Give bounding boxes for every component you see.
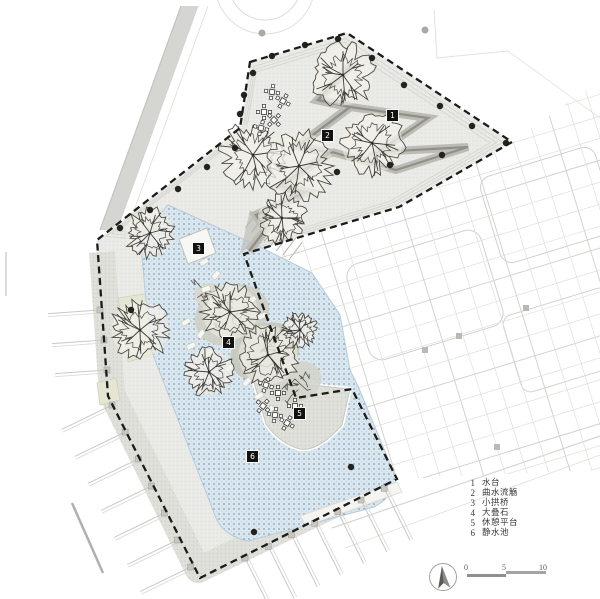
plan-marker-2: 2: [322, 130, 333, 141]
legend-item: 1水台: [466, 478, 518, 488]
scale-bar-segment: [506, 571, 546, 574]
legend: 1水台 2曲水流觞 3小拱桥 4大叠石 5休憩平台 6静水池: [466, 478, 518, 538]
plan-marker-4: 4: [223, 337, 234, 348]
legend-item: 6静水池: [466, 528, 518, 538]
scale-bar-segment: [467, 574, 506, 577]
legend-item: 2曲水流觞: [466, 488, 518, 498]
plan-marker-6: 6: [247, 451, 258, 462]
scale-bar: 0 5 10: [428, 560, 558, 596]
scale-tick: 0: [464, 563, 468, 572]
site-plan-page: 1 2 3 4 5 6 1水台 2曲水流觞 3小拱桥 4大叠石 5休憩平台 6静…: [0, 0, 600, 599]
plan-marker-5: 5: [294, 408, 305, 419]
legend-item: 3小拱桥: [466, 498, 518, 508]
plan-marker-3: 3: [193, 243, 204, 254]
legend-item: 5休憩平台: [466, 518, 518, 528]
plan-marker-1: 1: [387, 110, 398, 121]
legend-item: 4大叠石: [466, 508, 518, 518]
